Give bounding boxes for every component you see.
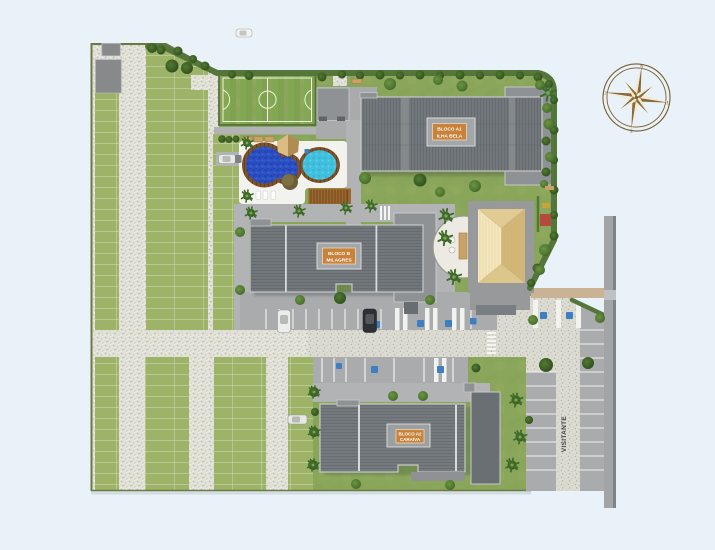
svg-text:ILHA BELA: ILHA BELA xyxy=(437,134,463,140)
svg-text:BLOCO B: BLOCO B xyxy=(328,251,351,257)
svg-text:BLOCO A1: BLOCO A1 xyxy=(437,127,462,133)
svg-text:MILAGRES: MILAGRES xyxy=(326,258,352,264)
svg-text:BLOCO A2: BLOCO A2 xyxy=(398,431,422,436)
svg-text:VISITANTE: VISITANTE xyxy=(561,416,568,453)
svg-text:CARAÍVA: CARAÍVA xyxy=(400,435,421,442)
